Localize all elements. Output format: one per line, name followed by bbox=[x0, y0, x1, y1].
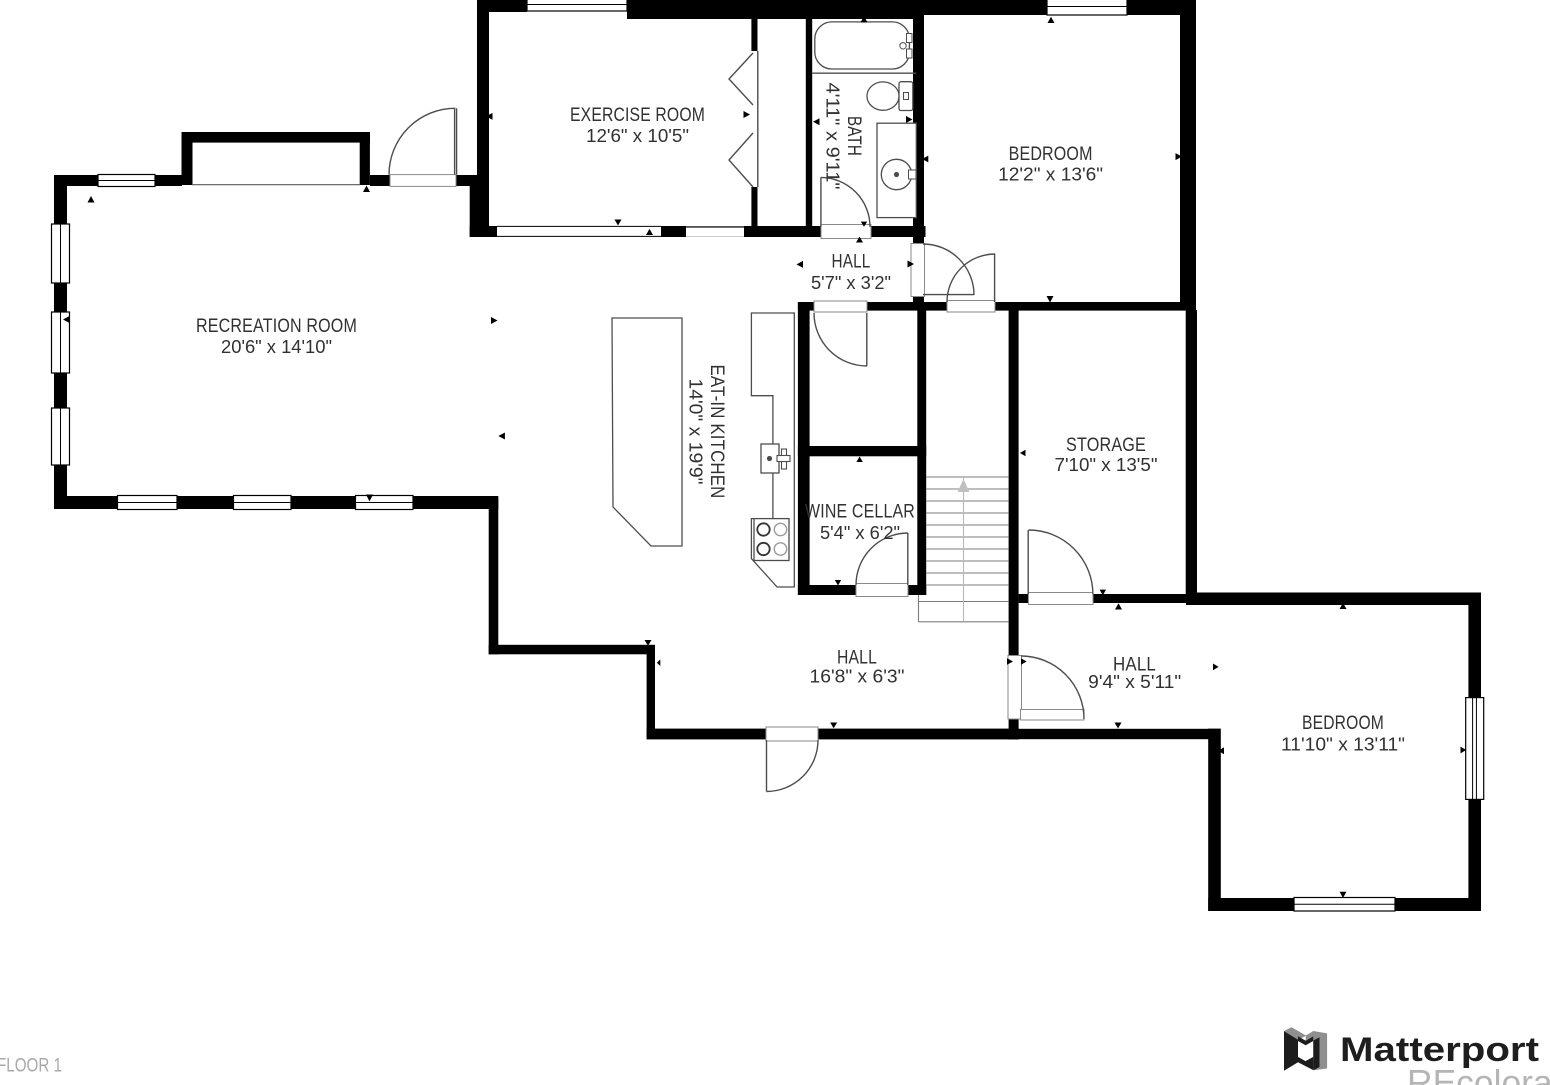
svg-text:7'10" x 13'5": 7'10" x 13'5" bbox=[1055, 454, 1158, 475]
svg-text:5'7" x 3'2": 5'7" x 3'2" bbox=[811, 272, 891, 293]
svg-text:12'2" x 13'6": 12'2" x 13'6" bbox=[998, 163, 1103, 184]
svg-text:4'11" x 9'11": 4'11" x 9'11" bbox=[823, 83, 844, 190]
svg-text:20'6" x 14'10": 20'6" x 14'10" bbox=[221, 336, 332, 357]
svg-text:12'6" x 10'5": 12'6" x 10'5" bbox=[586, 125, 689, 146]
svg-text:9'4" x 5'11": 9'4" x 5'11" bbox=[1088, 671, 1181, 692]
svg-text:BATH: BATH bbox=[843, 116, 864, 156]
svg-text:HALL: HALL bbox=[832, 251, 871, 272]
svg-text:14'0" x 19'9": 14'0" x 19'9" bbox=[686, 379, 707, 485]
svg-text:BEDROOM: BEDROOM bbox=[1302, 713, 1384, 734]
svg-text:WINE CELLAR: WINE CELLAR bbox=[805, 501, 915, 522]
svg-text:REcolorado: REcolorado bbox=[1407, 1062, 1550, 1085]
svg-text:5'4" x 6'2": 5'4" x 6'2" bbox=[820, 522, 900, 543]
svg-text:STORAGE: STORAGE bbox=[1066, 435, 1146, 456]
svg-text:RECREATION ROOM: RECREATION ROOM bbox=[196, 316, 357, 337]
svg-text:EAT-IN KITCHEN: EAT-IN KITCHEN bbox=[706, 365, 727, 499]
svg-text:16'8" x 6'3": 16'8" x 6'3" bbox=[810, 666, 905, 687]
svg-text:BEDROOM: BEDROOM bbox=[1009, 144, 1093, 165]
svg-text:FLOOR 1: FLOOR 1 bbox=[0, 1056, 62, 1077]
svg-text:EXERCISE ROOM: EXERCISE ROOM bbox=[570, 105, 705, 126]
svg-text:11'10" x 13'11": 11'10" x 13'11" bbox=[1281, 733, 1405, 754]
